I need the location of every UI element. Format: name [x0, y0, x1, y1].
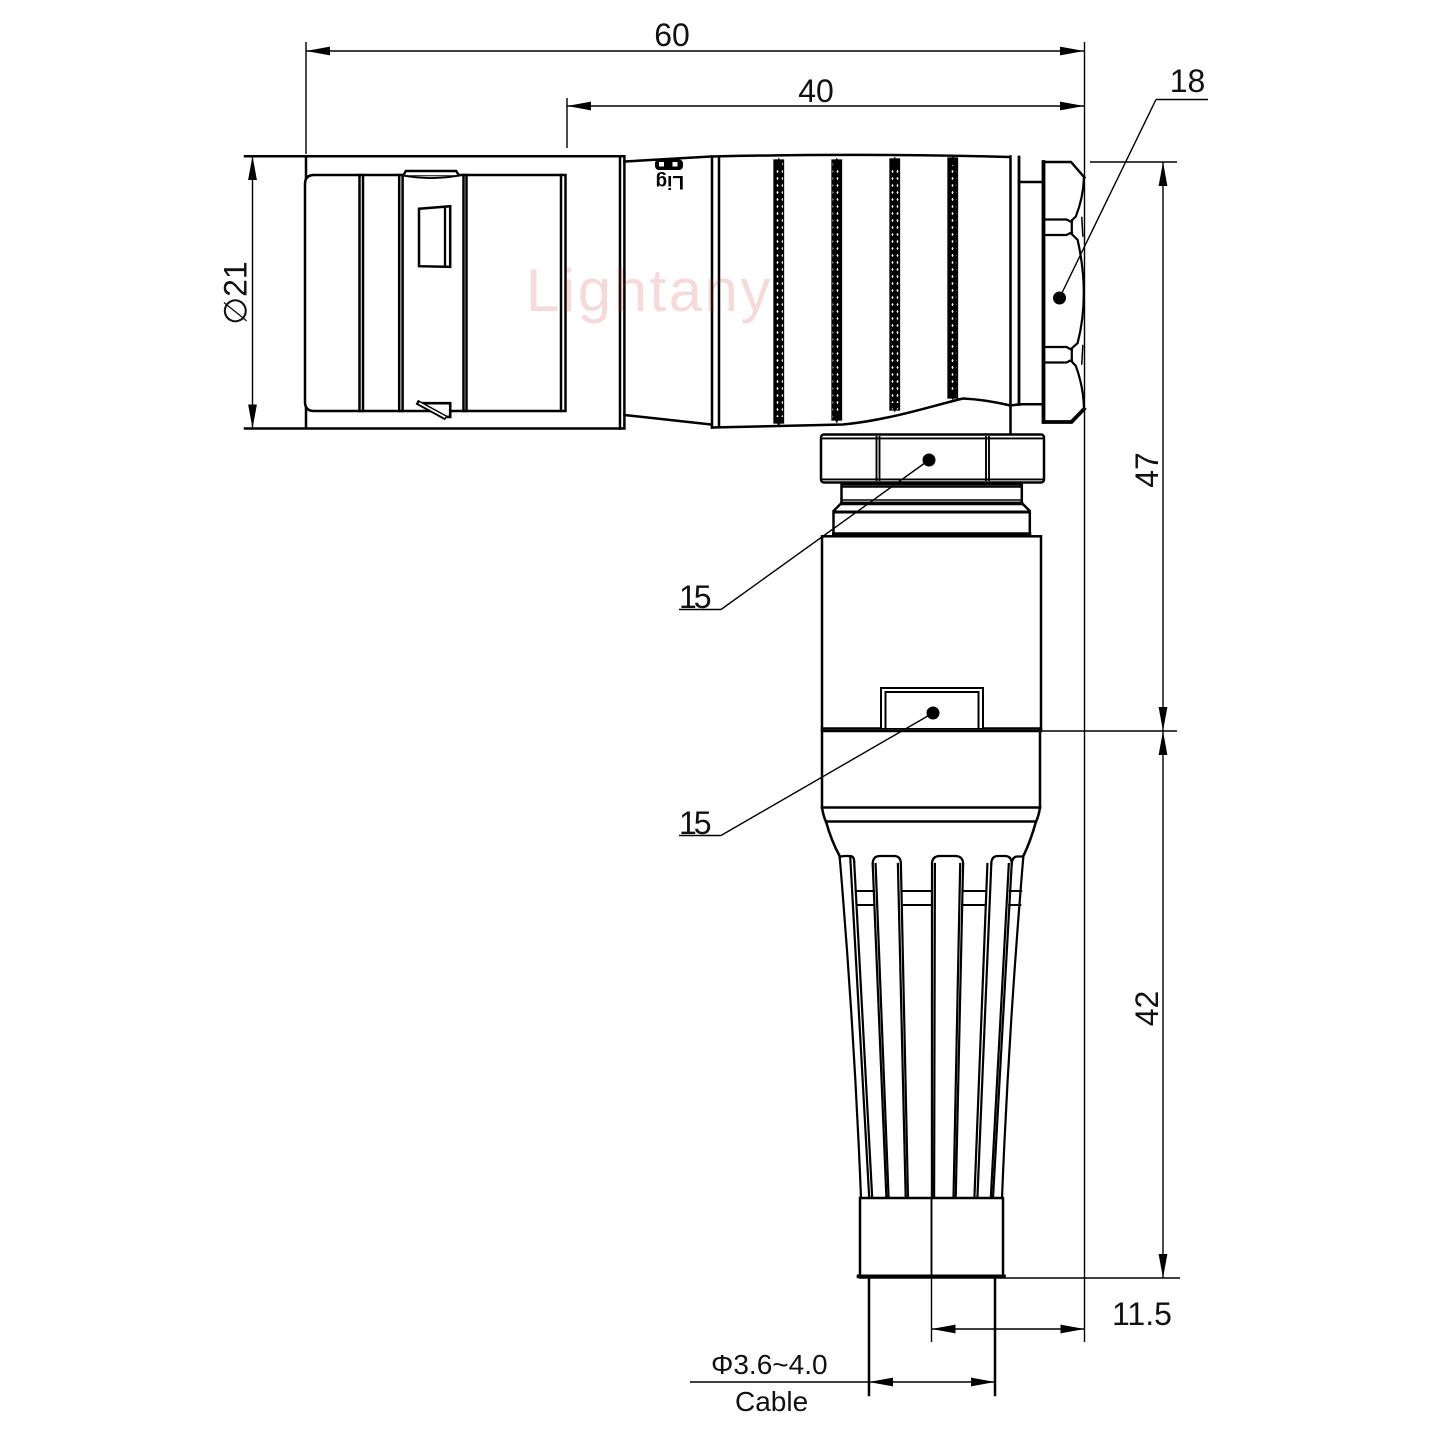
- svg-text:Φ3.6~4.0: Φ3.6~4.0: [711, 1349, 828, 1380]
- svg-text:15: 15: [679, 579, 711, 615]
- svg-text:11.5: 11.5: [1112, 1296, 1172, 1332]
- svg-text:∅21: ∅21: [218, 261, 254, 324]
- svg-text:47: 47: [1129, 452, 1165, 488]
- svg-text:42: 42: [1129, 991, 1165, 1027]
- svg-text:40: 40: [798, 73, 834, 109]
- svg-text:Lightany: Lightany: [526, 257, 773, 324]
- svg-text:18: 18: [1170, 63, 1206, 99]
- svg-text:Lig: Lig: [656, 171, 685, 192]
- svg-text:60: 60: [654, 17, 690, 53]
- svg-text:Cable: Cable: [735, 1386, 808, 1417]
- svg-text:15: 15: [679, 805, 711, 841]
